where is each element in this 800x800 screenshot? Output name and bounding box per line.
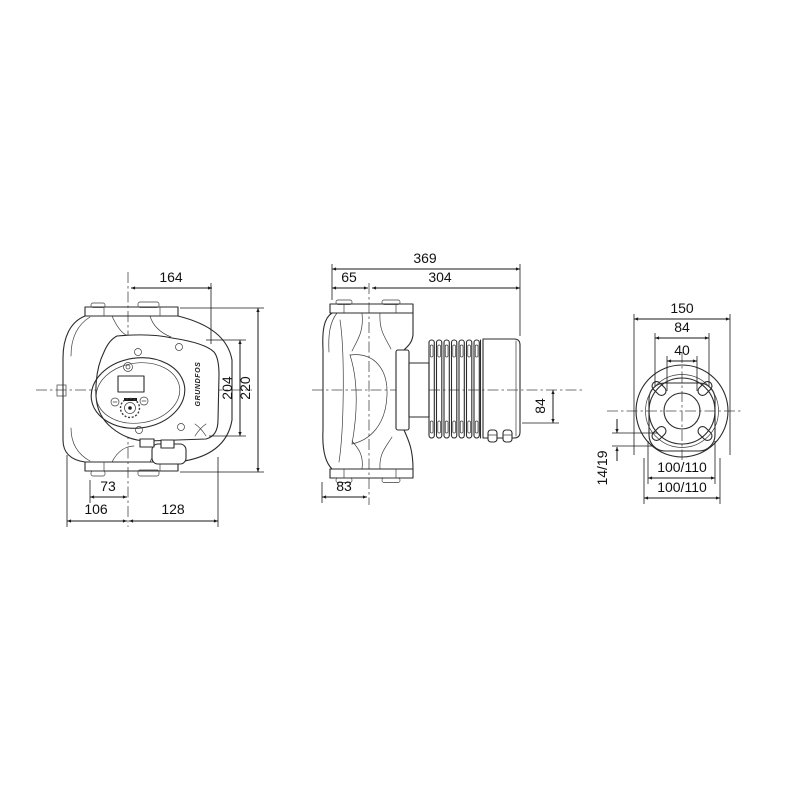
winding-loop	[453, 345, 456, 357]
impeller-leaf-curve	[350, 355, 356, 444]
casting-curve	[112, 316, 134, 336]
dim-label-220: 220	[237, 376, 253, 400]
body-right-outline	[404, 430, 413, 469]
fin	[474, 340, 479, 438]
motor-mount-plate	[396, 350, 409, 430]
dim-label-slot: 14/19	[594, 450, 610, 485]
winding-loop	[430, 421, 433, 433]
control-head: GRUNDFOS	[87, 335, 219, 448]
body-right-outline	[404, 313, 413, 350]
side-view-dimensions: 369 65 304 84 83	[322, 250, 559, 503]
neck-curve	[380, 437, 392, 469]
pump-dimensional-drawing: GRUNDFOS 164 220 204 73 106	[0, 0, 800, 800]
volute-left-inner-curve	[71, 428, 90, 461]
winding-loop	[453, 421, 456, 433]
neck-curve	[352, 441, 362, 469]
winding-loop	[438, 421, 441, 433]
control-box-end	[483, 339, 520, 438]
fin	[444, 340, 449, 438]
winding-loop	[460, 345, 463, 357]
fin	[452, 340, 457, 438]
fin	[467, 340, 472, 438]
flange-boss	[382, 478, 400, 483]
dim-label-150: 150	[670, 300, 694, 316]
winding-loop	[475, 345, 478, 357]
cable-gland	[503, 430, 512, 442]
side-pump-housing	[323, 300, 429, 483]
stator-fins	[429, 340, 479, 438]
dim-label-40: 40	[674, 342, 690, 358]
flange-boss	[91, 471, 105, 476]
cable-glands	[488, 430, 512, 442]
gland-tab	[140, 439, 154, 447]
dim-label-65: 65	[341, 269, 357, 285]
pump-neck	[409, 363, 429, 417]
volute-belly-outline	[323, 313, 332, 469]
dim-label-bolt-circle-outer: 100/110	[657, 479, 707, 495]
dim-label-204: 204	[219, 376, 235, 400]
dim-label-304: 304	[428, 269, 452, 285]
side-motor	[429, 339, 520, 442]
fin	[437, 340, 442, 438]
flange-plate	[330, 469, 413, 478]
winding-loop	[430, 345, 433, 357]
dim-label-84-side: 84	[532, 398, 548, 414]
volute-left-inner-curve	[71, 317, 90, 356]
winding-loop	[445, 421, 448, 433]
casting-curve	[150, 316, 171, 337]
flange-view: 150 84 40 14/19 100/110 100/110	[594, 300, 742, 504]
cable-gland	[488, 430, 497, 442]
neck-curve	[352, 313, 362, 351]
dim-label-73: 73	[100, 478, 116, 494]
ok-button-dot	[128, 406, 132, 410]
dim-label-84-flange: 84	[674, 319, 690, 335]
dim-label-83: 83	[336, 478, 352, 494]
dim-label-128: 128	[161, 501, 185, 517]
dim-label-106: 106	[84, 501, 108, 517]
winding-loop	[445, 345, 448, 357]
dim-label-369: 369	[413, 250, 437, 266]
winding-loop	[460, 421, 463, 433]
dim-label-bolt-circle-inner: 100/110	[657, 459, 707, 475]
flange-plate	[330, 304, 413, 313]
winding-loop	[468, 345, 471, 357]
winding-loop	[438, 345, 441, 357]
side-view: 369 65 304 84 83	[312, 250, 585, 505]
winding-loop	[468, 421, 471, 433]
dim-label-164: 164	[159, 269, 183, 285]
casting-curve	[112, 446, 134, 462]
flange-view-dimensions: 150 84 40 14/19 100/110 100/110	[594, 300, 730, 504]
fin	[429, 340, 434, 438]
front-view: GRUNDFOS 164 220 204 73 106	[36, 269, 264, 527]
winding-loop	[475, 421, 478, 433]
technical-drawing-page: GRUNDFOS 164 220 204 73 106	[0, 0, 800, 800]
fin	[459, 340, 464, 438]
side-top-flange	[330, 300, 413, 313]
impeller-leaf-curve	[350, 355, 387, 444]
casting-curve	[339, 320, 343, 462]
flange-plate	[85, 307, 178, 316]
casting-curve	[329, 313, 337, 352]
front-top-flange	[85, 302, 178, 316]
brand-label: GRUNDFOS	[195, 362, 202, 407]
gland-tab	[161, 440, 174, 448]
neck-curve	[380, 313, 391, 349]
gauge-port	[57, 385, 66, 396]
